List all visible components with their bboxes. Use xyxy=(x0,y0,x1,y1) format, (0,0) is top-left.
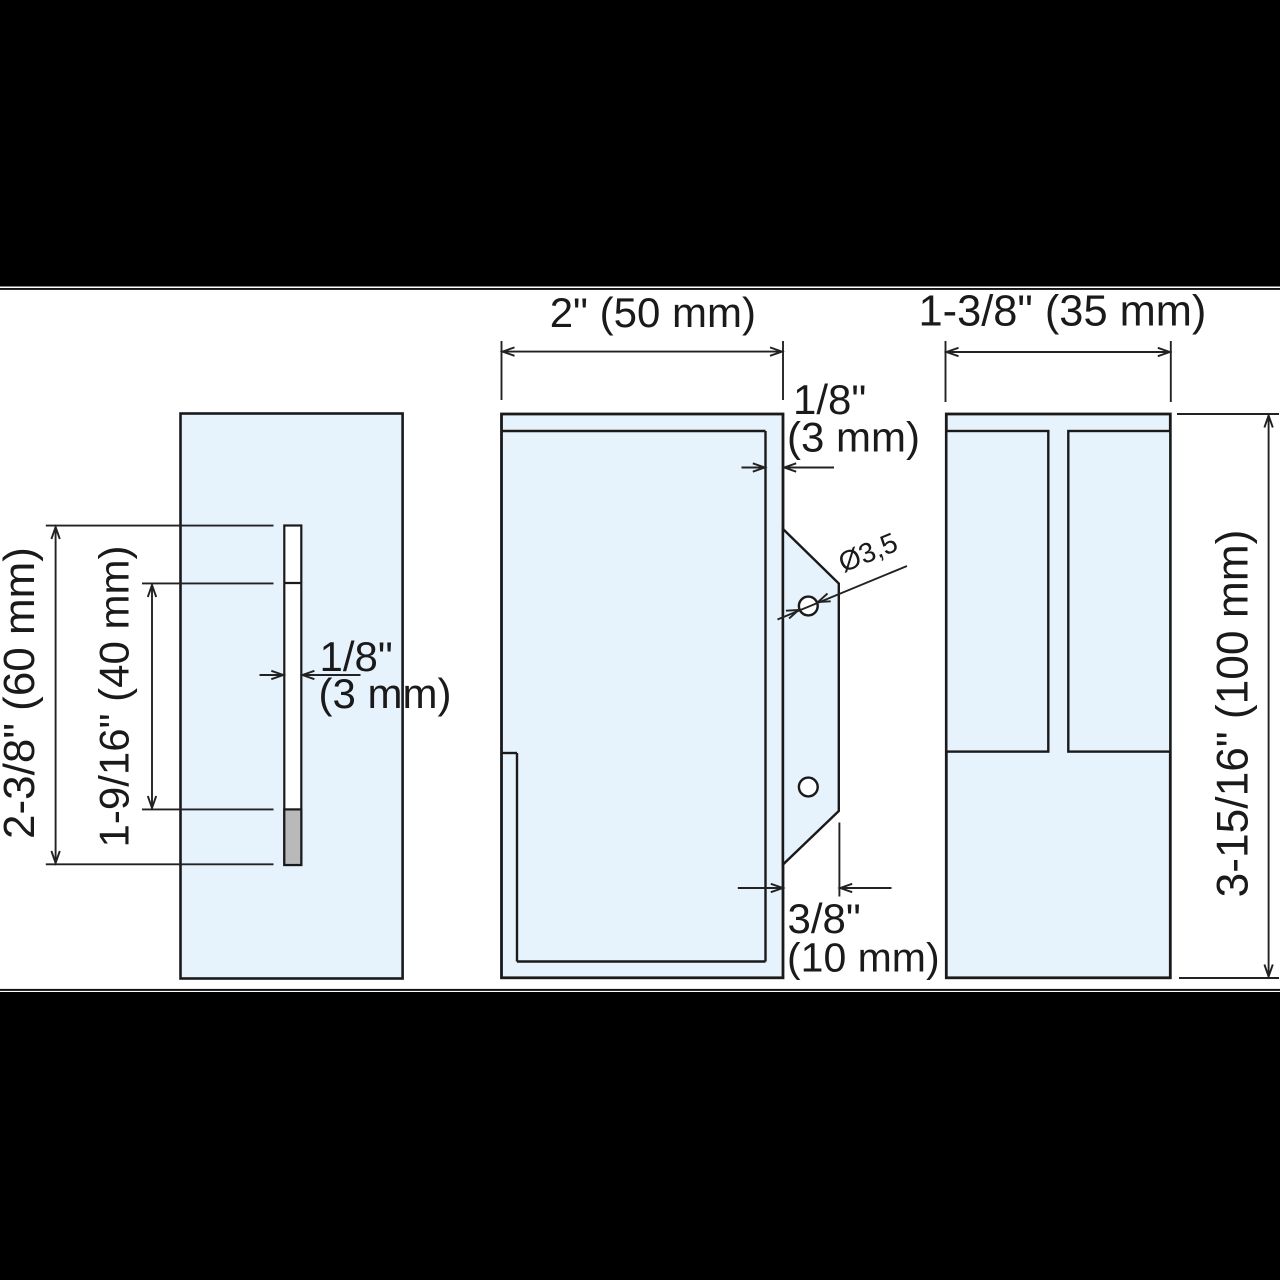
svg-text:1-3/8" (35 mm): 1-3/8" (35 mm) xyxy=(919,288,1207,336)
svg-text:(3 mm): (3 mm) xyxy=(319,670,452,717)
svg-text:1-9/16" (40 mm): 1-9/16" (40 mm) xyxy=(91,546,138,848)
svg-text:(3 mm): (3 mm) xyxy=(787,414,920,461)
svg-text:3-15/16" (100 mm): 3-15/16" (100 mm) xyxy=(1209,530,1258,898)
svg-text:2-3/8" (60 mm): 2-3/8" (60 mm) xyxy=(0,547,44,839)
svg-text:2" (50 mm): 2" (50 mm) xyxy=(550,289,756,336)
svg-text:(10 mm): (10 mm) xyxy=(787,935,940,981)
